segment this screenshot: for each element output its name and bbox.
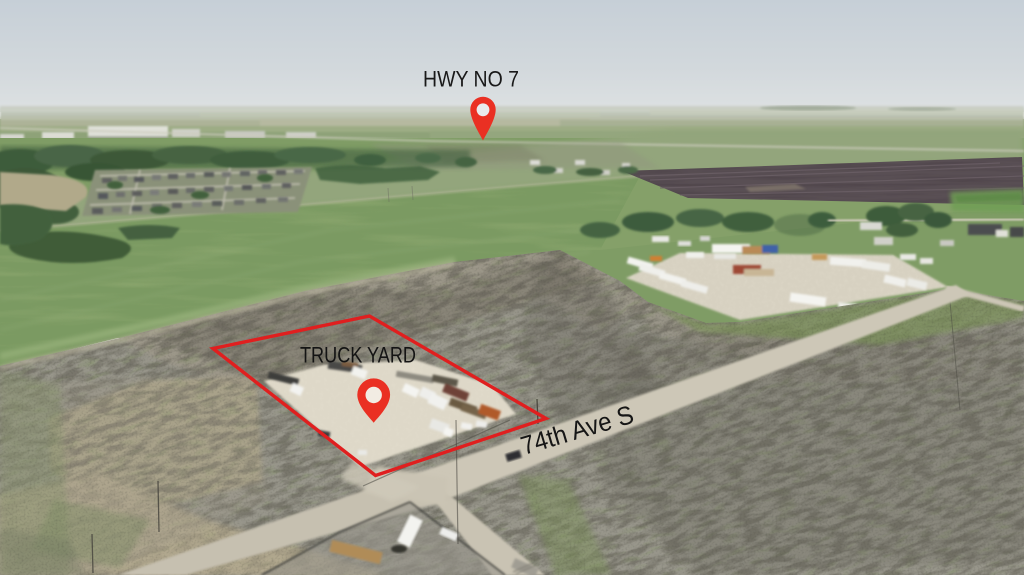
svg-text:TRUCK YARD: TRUCK YARD xyxy=(300,343,416,368)
svg-text:HWY NO 7: HWY NO 7 xyxy=(423,67,519,92)
